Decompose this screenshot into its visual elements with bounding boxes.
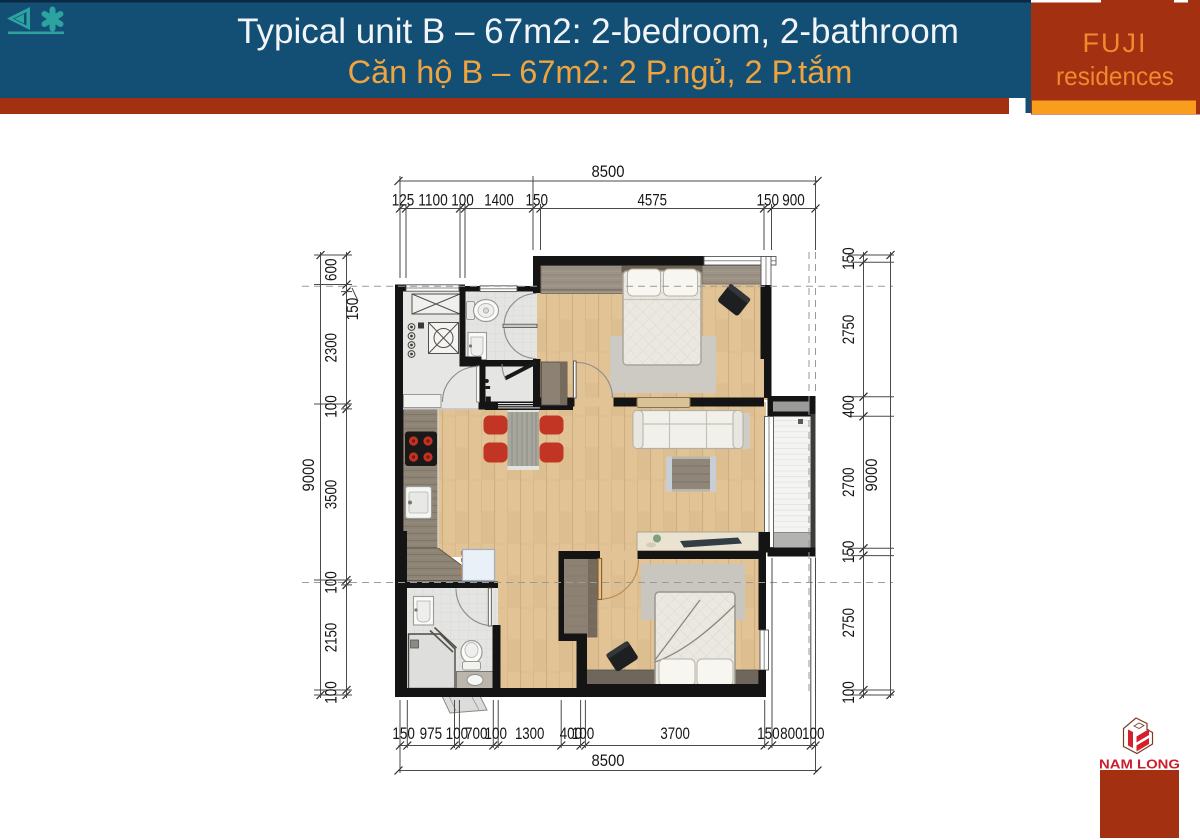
svg-text:100: 100 xyxy=(451,192,474,210)
svg-text:9000: 9000 xyxy=(863,459,881,492)
svg-text:8500: 8500 xyxy=(592,163,625,181)
svg-text:3500: 3500 xyxy=(323,480,341,510)
svg-text:100: 100 xyxy=(323,395,341,418)
svg-text:Căn hộ B – 67m2: 2 P.ngủ, 2 P.: Căn hộ B – 67m2: 2 P.ngủ, 2 P.tắm xyxy=(348,53,853,90)
svg-text:2750: 2750 xyxy=(840,315,858,345)
svg-text:800: 800 xyxy=(780,725,803,743)
svg-text:FUJI: FUJI xyxy=(1083,28,1148,58)
svg-text:100: 100 xyxy=(484,725,507,743)
svg-text:100: 100 xyxy=(572,725,595,743)
svg-text:150: 150 xyxy=(757,725,780,743)
svg-text:3700: 3700 xyxy=(660,725,690,743)
svg-text:Typical unit B – 67m2: 2-bedro: Typical unit B – 67m2: 2-bedroom, 2-bath… xyxy=(237,12,959,51)
svg-text:900: 900 xyxy=(782,192,805,210)
svg-text:1400: 1400 xyxy=(484,192,514,210)
svg-text:150: 150 xyxy=(392,725,415,743)
svg-text:975: 975 xyxy=(420,725,443,743)
svg-text:2300: 2300 xyxy=(323,333,341,363)
svg-text:400: 400 xyxy=(840,395,858,418)
svg-text:100: 100 xyxy=(802,725,825,743)
svg-text:150: 150 xyxy=(344,298,362,321)
svg-text:150: 150 xyxy=(840,247,858,270)
svg-text:100: 100 xyxy=(323,681,341,704)
svg-text:NAM LONG: NAM LONG xyxy=(1099,758,1180,772)
svg-text:9000: 9000 xyxy=(300,459,318,492)
svg-text:8500: 8500 xyxy=(592,752,625,770)
svg-text:residences: residences xyxy=(1056,61,1174,91)
svg-text:150: 150 xyxy=(757,192,780,210)
svg-text:2150: 2150 xyxy=(323,623,341,653)
svg-text:1100: 1100 xyxy=(418,192,448,210)
svg-text:1300: 1300 xyxy=(515,725,545,743)
svg-text:600: 600 xyxy=(323,258,341,281)
svg-text:2700: 2700 xyxy=(840,468,858,498)
svg-text:2750: 2750 xyxy=(840,608,858,638)
svg-text:100: 100 xyxy=(840,681,858,704)
svg-text:125: 125 xyxy=(392,192,415,210)
svg-text:4575: 4575 xyxy=(638,192,668,210)
svg-text:150: 150 xyxy=(840,541,858,564)
svg-text:100: 100 xyxy=(323,571,341,594)
svg-text:150: 150 xyxy=(526,192,549,210)
